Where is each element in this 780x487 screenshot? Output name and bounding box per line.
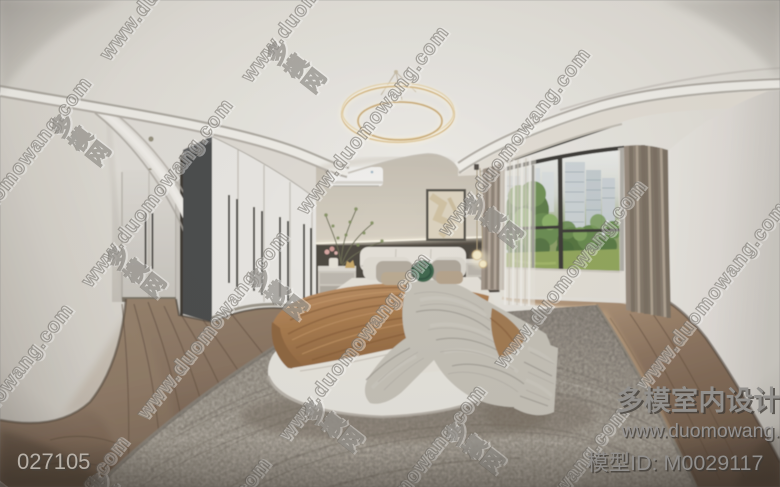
svg-text:模型ID: M0029117: 模型ID: M0029117	[587, 451, 763, 475]
svg-text:www.duomowang.com: www.duomowang.com	[621, 420, 780, 442]
svg-text:多模室内设计: 多模室内设计	[616, 385, 780, 416]
svg-text:027105: 027105	[17, 449, 90, 474]
